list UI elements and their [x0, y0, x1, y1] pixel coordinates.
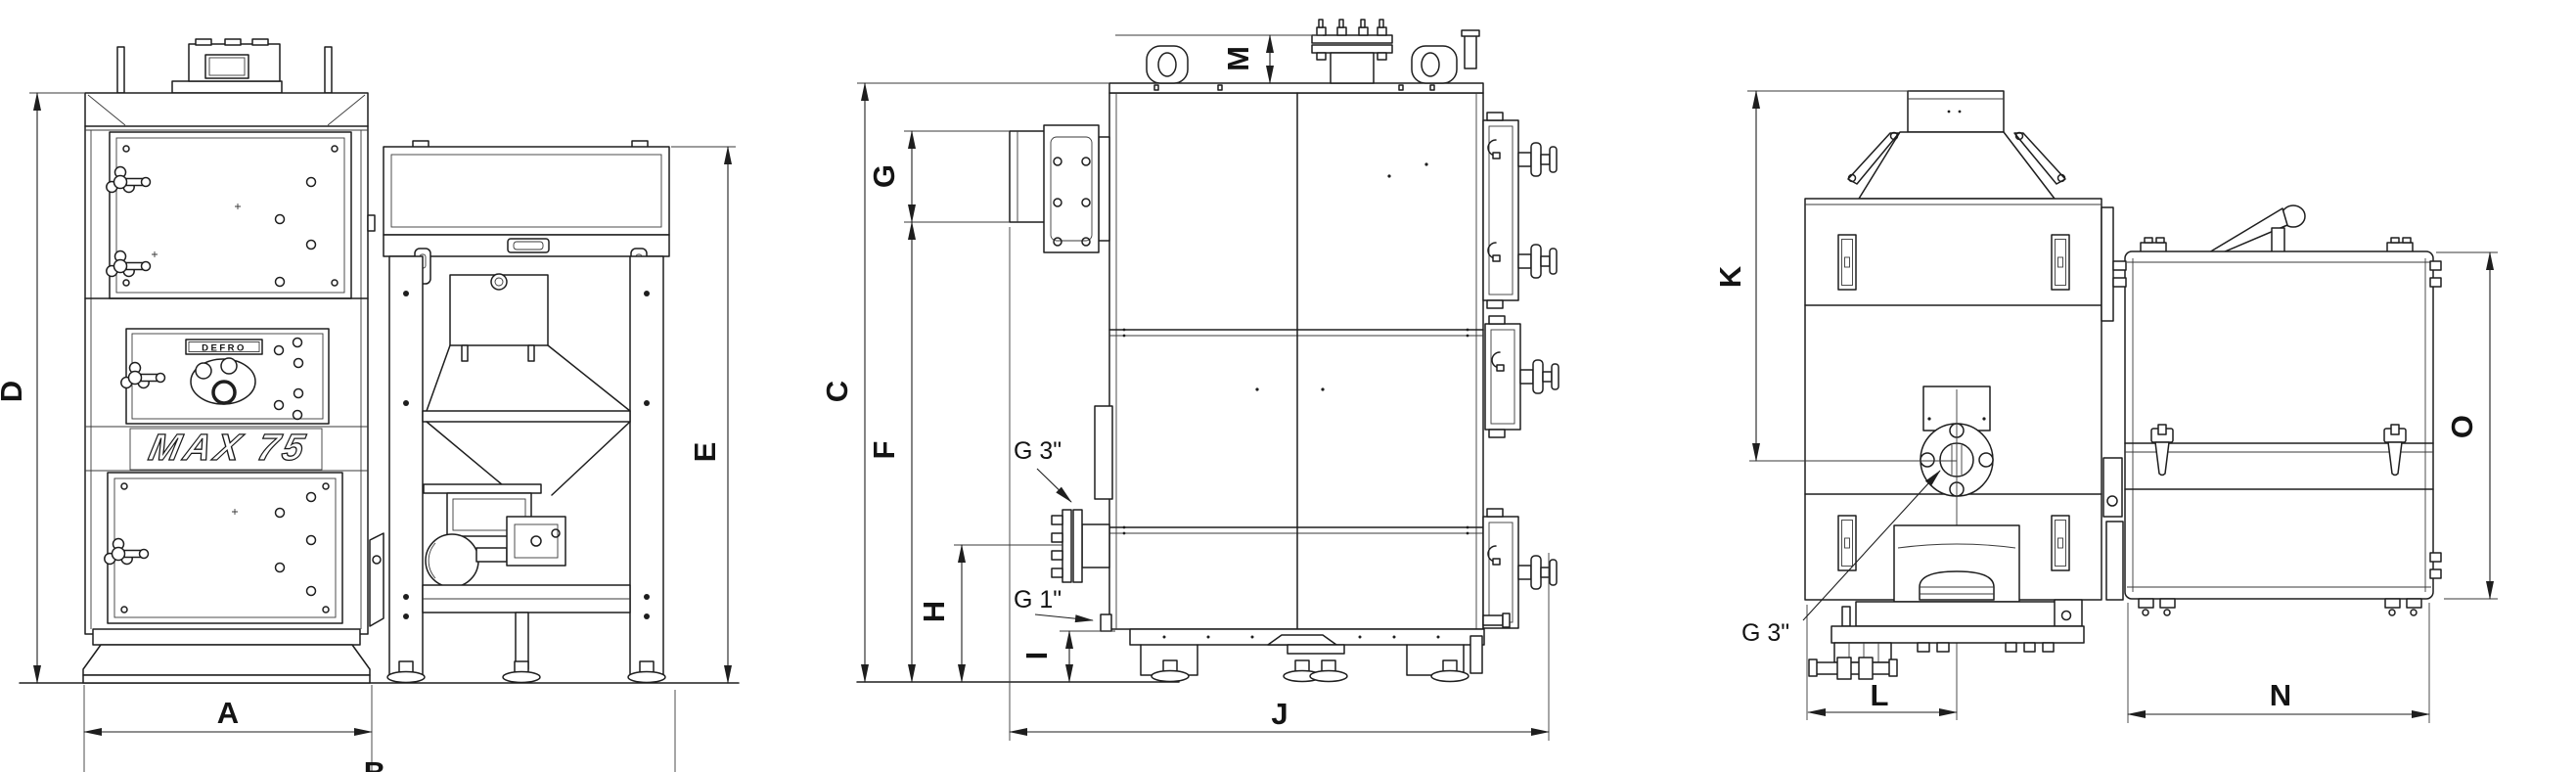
dim-label-l: L — [1871, 678, 1889, 712]
lifting-lug — [1147, 46, 1188, 83]
dim-label-b: B — [364, 755, 385, 772]
dim-label-o: O — [2445, 415, 2479, 438]
dim-label-h: H — [917, 601, 951, 622]
brand-plate-text: DEFRO — [202, 343, 247, 354]
dim-F: F — [867, 222, 912, 682]
flue-flange — [1044, 125, 1099, 252]
pedestal — [83, 645, 370, 675]
dim-label-g: G — [867, 164, 901, 188]
controller-display — [205, 55, 249, 78]
model-logo-text: MAX 75 — [146, 427, 312, 469]
dim-E: E — [671, 147, 736, 683]
feeder-gearbox — [507, 517, 565, 566]
door-frame-side — [1483, 517, 1518, 628]
g3-flange-side — [1062, 510, 1071, 582]
stand-leg-left — [389, 256, 423, 675]
boiler-rear-view — [1805, 91, 2123, 720]
dim-label-m: M — [1221, 46, 1255, 71]
dim-label-d: D — [0, 381, 28, 402]
auger-chute — [370, 533, 384, 626]
dim-N: N — [2128, 603, 2429, 723]
dim-label-k: K — [1713, 265, 1747, 288]
base-plate — [1831, 626, 2084, 643]
stand-leg-right — [630, 256, 663, 675]
feeder-motor — [426, 534, 478, 587]
hopper-body-side — [2125, 251, 2433, 599]
dim-D: D — [0, 93, 85, 683]
upper-door — [110, 132, 351, 298]
door-frame-side — [1485, 324, 1520, 430]
dim-label-f: F — [867, 441, 901, 460]
dim-I: I — [1019, 631, 1115, 682]
port-label-g1-side: G 1" — [1014, 586, 1062, 613]
dim-label-e: E — [688, 442, 722, 463]
outlet-flange — [1312, 35, 1392, 43]
lifting-lug — [1412, 46, 1457, 83]
access-panel — [1095, 406, 1112, 499]
dim-G: G — [867, 131, 1010, 222]
dim-label-a: A — [217, 696, 239, 730]
dim-O: O — [2436, 252, 2498, 599]
controller-base — [172, 81, 282, 93]
dim-label-c: C — [820, 381, 854, 402]
boiler-dimensional-drawing: DEFRO MAX 75 — [0, 0, 2576, 772]
port-label-g3-side: G 3" — [1014, 437, 1062, 465]
dim-H: H — [917, 545, 1062, 682]
g1-port — [1101, 614, 1111, 631]
dim-label-i: I — [1019, 652, 1054, 660]
feeder-hopper-side-view — [2113, 205, 2441, 615]
flue-outlet — [1010, 131, 1045, 222]
port-label-g3-rear: G 3" — [1741, 619, 1789, 647]
dim-label-n: N — [2270, 678, 2291, 712]
dim-label-j: J — [1271, 697, 1288, 731]
dim-A: A — [84, 685, 372, 772]
boiler-body-side — [1109, 93, 1483, 629]
vent-pipe — [1465, 35, 1476, 68]
feeder-hopper-front-view — [370, 141, 669, 683]
dim-B: B — [364, 690, 675, 772]
hopper-lid — [384, 147, 669, 235]
chimney-stack — [1908, 91, 2004, 132]
